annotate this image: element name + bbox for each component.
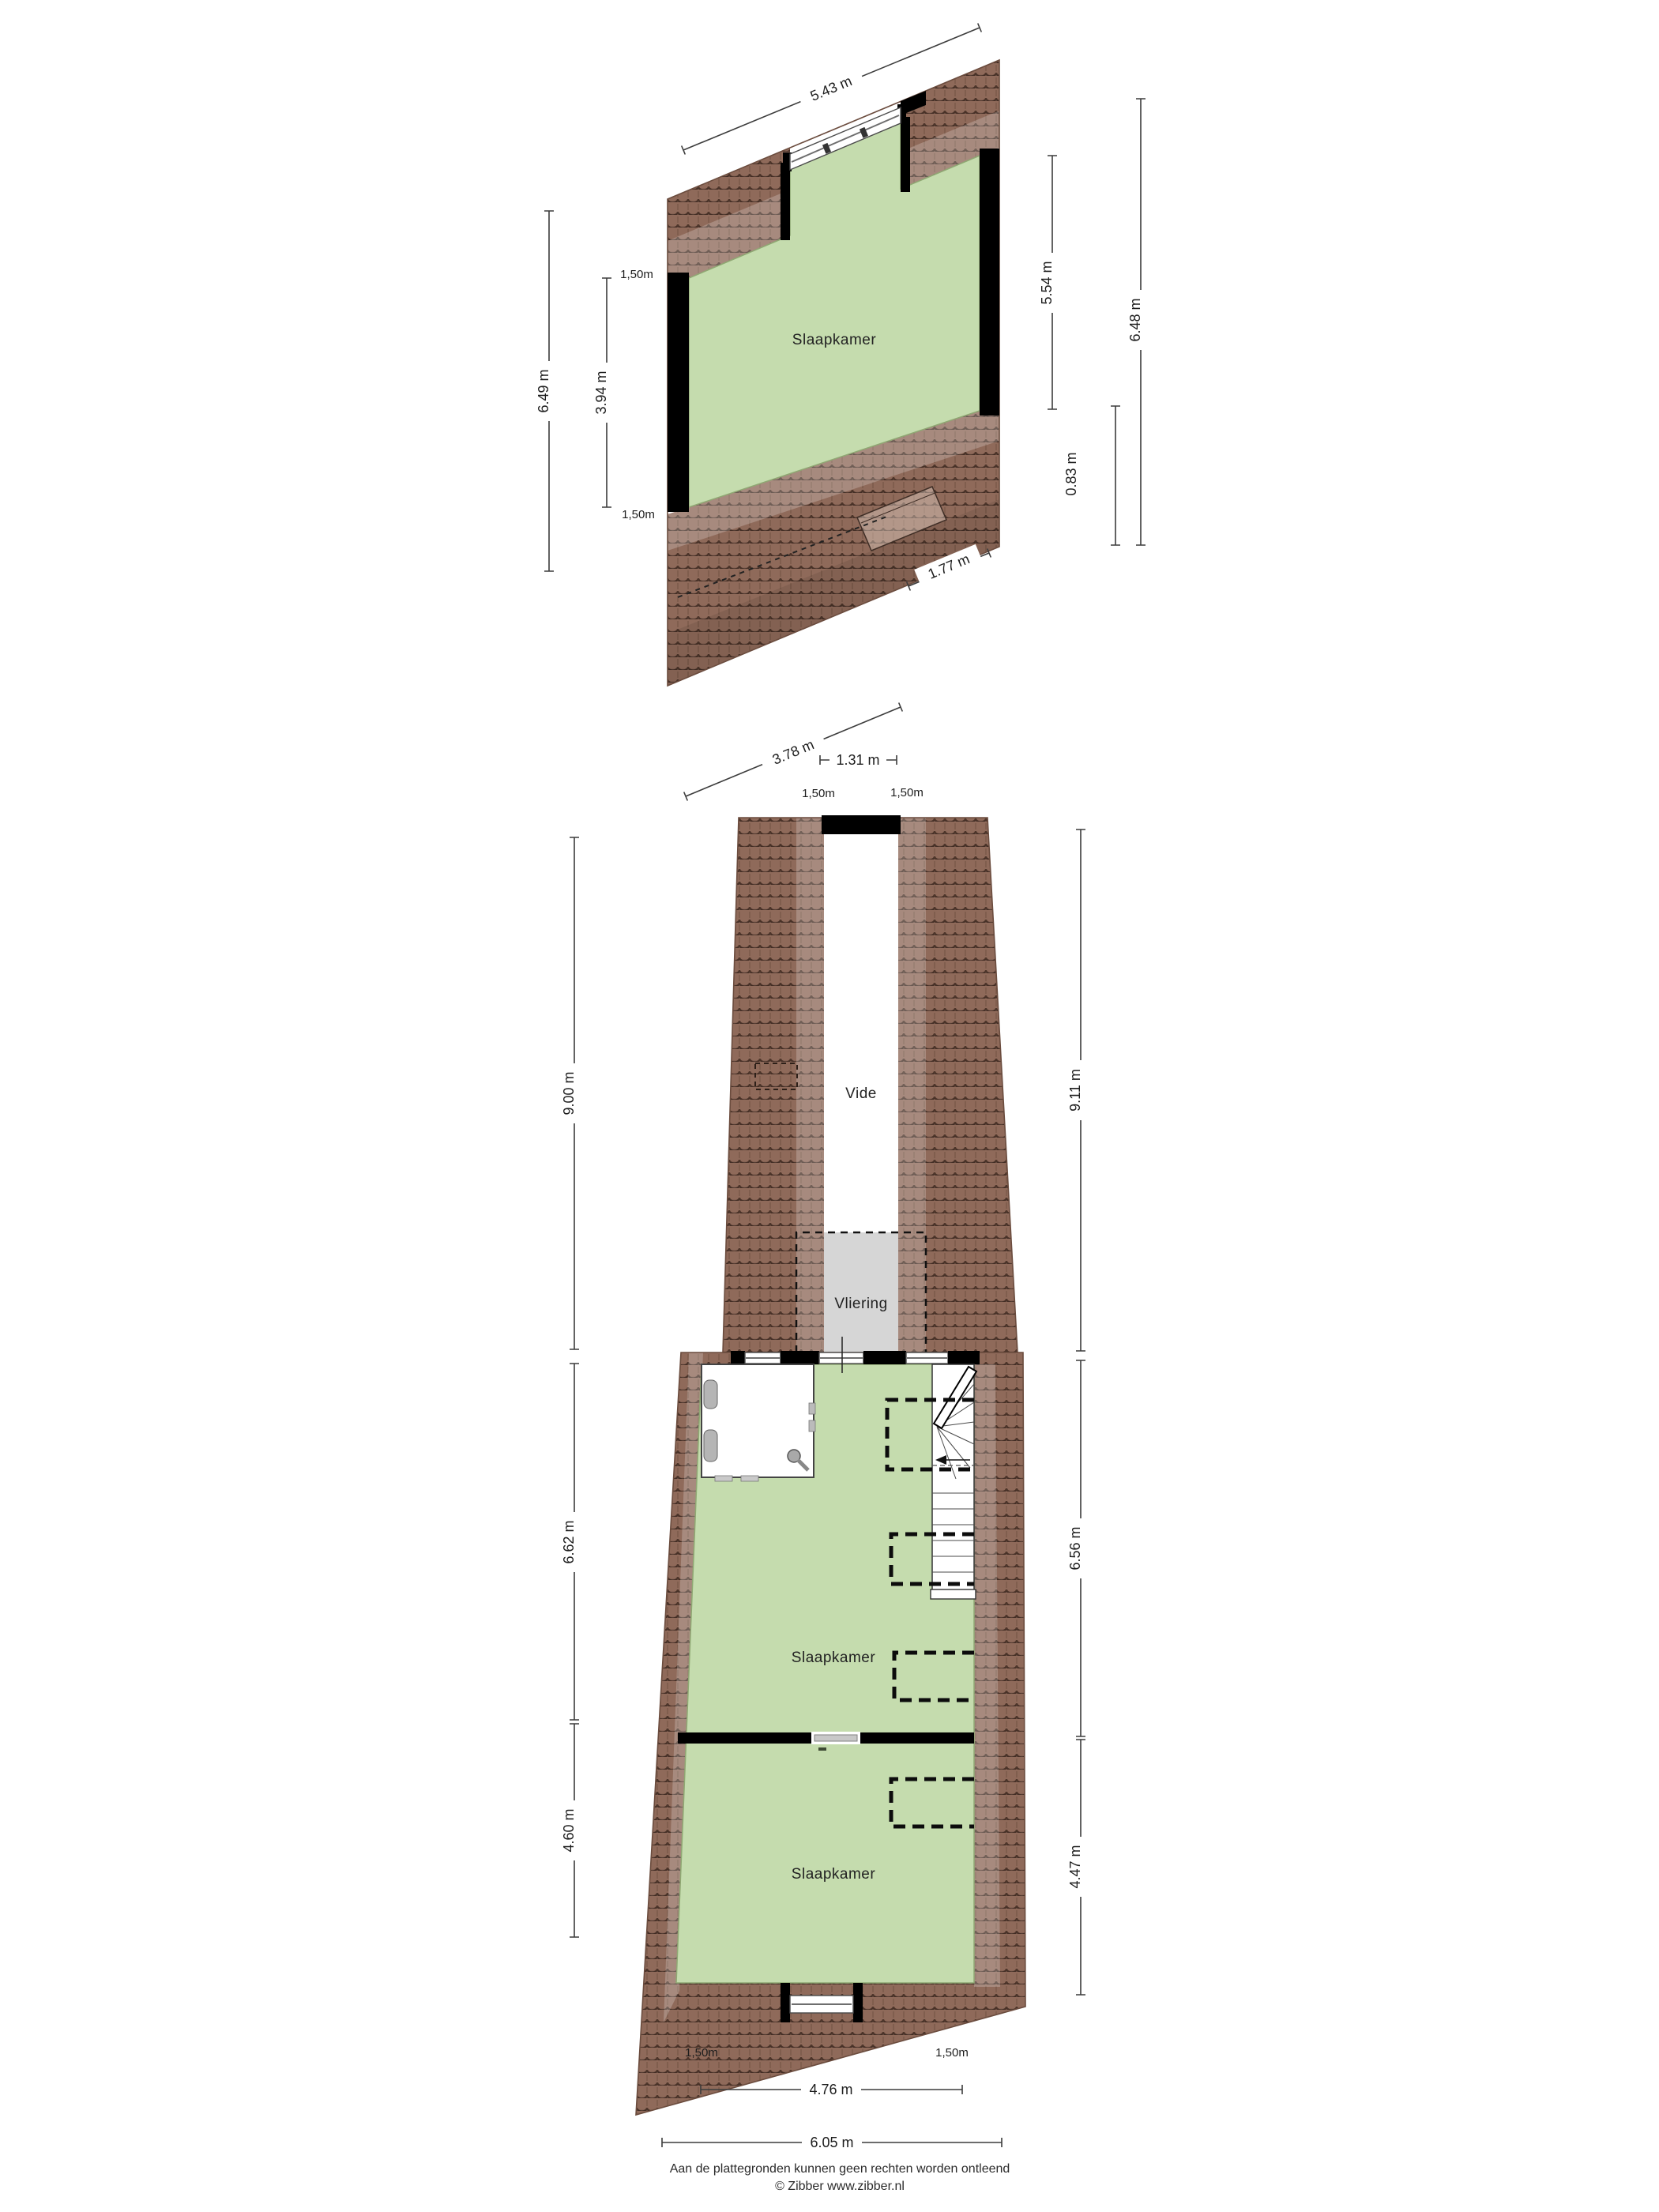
svg-text:1,50m: 1,50m [685,2046,718,2060]
attic-section: Slaapkamer Slaapkamer [636,1337,1025,2115]
room-label-bottom: Slaapkamer [792,1866,876,1883]
dim-right-middle-656: 6.56 m [1065,1360,1085,1736]
svg-text:5.54 m: 5.54 m [1039,261,1055,304]
dim-right-lower-447: 4.47 m [1065,1740,1085,1995]
knee-height-top: 1,50m [620,268,653,281]
dim-right-outer-648: 6.48 m [1125,99,1145,545]
svg-text:6.62 m: 6.62 m [561,1520,577,1563]
footer-disclaimer: Aan de plattegronden kunnen geen rechten… [670,2162,1010,2176]
footer: Aan de plattegronden kunnen geen rechten… [670,2162,1010,2193]
room-label-floor2: Slaapkamer [792,332,877,348]
floor-3-plan: Vide Vliering [559,750,1085,2153]
svg-text:6.49 m: 6.49 m [536,369,551,412]
svg-text:4.47 m: 4.47 m [1067,1845,1083,1888]
svg-text:4.60 m: 4.60 m [561,1808,577,1852]
svg-text:9.00 m: 9.00 m [561,1071,577,1115]
svg-text:1,50m: 1,50m [802,787,835,800]
floor-2-plan: Slaapkamer 5.43 m 6.49 m 3.94 m 1,50m 1,… [533,24,1145,801]
fixture-basin [704,1380,717,1409]
knee-height-bottom: 1,50m [622,508,655,521]
svg-text:6.56 m: 6.56 m [1067,1526,1083,1570]
dim-left-inner-394: 3.94 m 1,50m 1,50m [591,268,655,521]
dim-left-outer-649: 6.49 m [533,211,554,571]
svg-text:1,50m: 1,50m [890,786,924,799]
vliering-area [824,1232,898,1352]
dim-right-band-083: 0.83 m [1061,406,1120,545]
floorplan-canvas: Slaapkamer 5.43 m 6.49 m 3.94 m 1,50m 1,… [0,0,1659,2212]
svg-text:4.76 m: 4.76 m [809,2082,852,2097]
sliding-door [814,1735,857,1741]
room-label-middle: Slaapkamer [792,1650,876,1666]
svg-text:9.11 m: 9.11 m [1067,1069,1083,1112]
top-wall [822,815,901,834]
dim-right-inner-554: 5.54 m [1036,156,1057,409]
dim-left-upper-900: 9.00 m [559,837,579,1349]
svg-text:6.05 m: 6.05 m [810,2135,853,2150]
svg-text:1.31 m: 1.31 m [836,752,879,768]
attic-top-wall [731,1351,980,1364]
dim-left-lower-460: 4.60 m [559,1724,579,1937]
svg-text:6.48 m: 6.48 m [1127,298,1143,341]
svg-text:3.94 m: 3.94 m [593,371,609,414]
svg-text:1,50m: 1,50m [935,2046,969,2060]
vliering-label: Vliering [834,1296,887,1312]
vide-section: Vide Vliering [723,815,1018,1356]
dim-left-middle-662: 6.62 m [559,1364,579,1720]
floorplan-page: Slaapkamer 5.43 m 6.49 m 3.94 m 1,50m 1,… [0,0,1659,2212]
dim-top-131: 1.31 m 1,50m 1,50m [802,750,924,800]
dim-right-upper-911: 9.11 m [1065,829,1085,1351]
fixture-basin-2 [704,1430,717,1461]
footer-copyright: © Zibber www.zibber.nl [775,2180,905,2193]
shower-room [702,1364,815,1481]
vide-label: Vide [845,1085,877,1102]
dim-bottom-outer-605: 6.05 m [662,2132,1002,2153]
svg-text:0.83 m: 0.83 m [1063,452,1079,495]
